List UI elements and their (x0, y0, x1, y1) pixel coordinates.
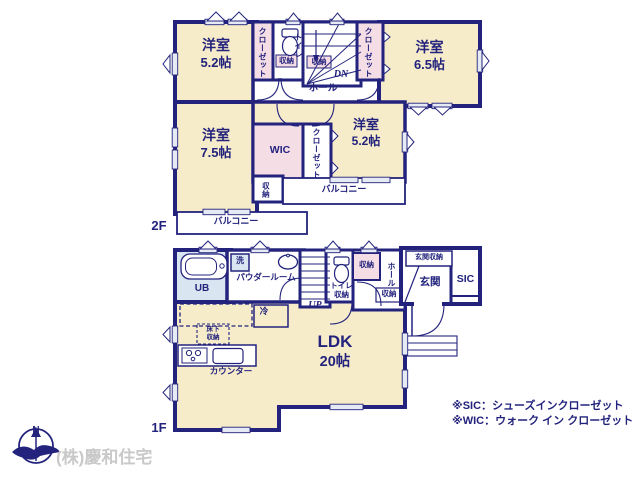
bedroom-ne-name: 洋室 (379, 40, 480, 56)
bedroom-e-size: 5.2帖 (327, 135, 405, 148)
floor1-label: 1F (146, 421, 172, 436)
company-name: (株)慶和住宅 (56, 448, 152, 467)
underfloor-label-1: 床下 (197, 326, 229, 333)
ub-label: UB (175, 283, 229, 294)
stairs-up-label: UP (302, 300, 328, 311)
washer-label: 洗 (231, 257, 249, 266)
hall-2f-label: ホール (298, 84, 348, 95)
stairs-down-label: DN (330, 69, 352, 80)
counter-label: カウンター (205, 367, 257, 377)
bedroom-w-name: 洋室 (175, 128, 257, 144)
toilet-1f-icon (334, 257, 349, 265)
hall-storage-north-label: 収納 (353, 261, 380, 269)
bedroom-nw-name: 洋室 (177, 38, 255, 54)
stove-icon (182, 348, 207, 363)
note-sic: ※SIC：シューズインクローゼット (452, 400, 623, 412)
balcony-east-label: バルコニー (283, 184, 405, 194)
hall-storage-south-label: 収納 (376, 290, 402, 298)
hall-1f-label: ホール (386, 257, 395, 293)
storage-south-label: 収納 (261, 179, 269, 200)
floor2-label: 2F (146, 219, 172, 234)
closet-e-label: クローゼット (311, 128, 320, 178)
powder-room-label: パウダールーム (228, 273, 304, 283)
toilet-1f-storage-label: 収納 (326, 291, 357, 299)
bedroom-ne-size: 6.5帖 (379, 58, 480, 73)
fridge-label: 冷 (256, 307, 272, 317)
note-wic: ※WIC：ウォーク イン クローゼット (452, 415, 633, 427)
entrance-storage-label: 玄関収納 (406, 254, 452, 262)
sic-label: SIC (451, 274, 480, 286)
bedroom-w-size: 7.5帖 (175, 146, 257, 161)
balcony-south-label: バルコニー (177, 216, 295, 226)
entrance-label: 玄関 (410, 277, 450, 289)
underfloor-label-2: 収納 (197, 334, 229, 341)
floor-plan: 洋室 5.2帖 クローゼット トイレ 収納 収納 DN クローゼット ホール 洋… (0, 0, 640, 480)
entrance-porch (407, 300, 457, 357)
wic-label: WIC (253, 145, 307, 157)
ldk-size: 20帖 (300, 354, 370, 370)
closet-ne-label: クローゼット (363, 27, 372, 77)
bedroom-e-name: 洋室 (327, 118, 405, 133)
toilet-storage-label: 収納 (276, 57, 297, 65)
compass-north-label: N (30, 425, 42, 436)
stairs-storage-label: 収納 (307, 58, 331, 66)
toilet-2f-label: トイレ (293, 33, 302, 59)
ldk-name: LDK (300, 332, 370, 351)
bedroom-nw-size: 5.2帖 (177, 56, 255, 71)
closet-nw-label: クローゼット (257, 27, 266, 77)
kitchen-sink-icon (213, 349, 243, 364)
